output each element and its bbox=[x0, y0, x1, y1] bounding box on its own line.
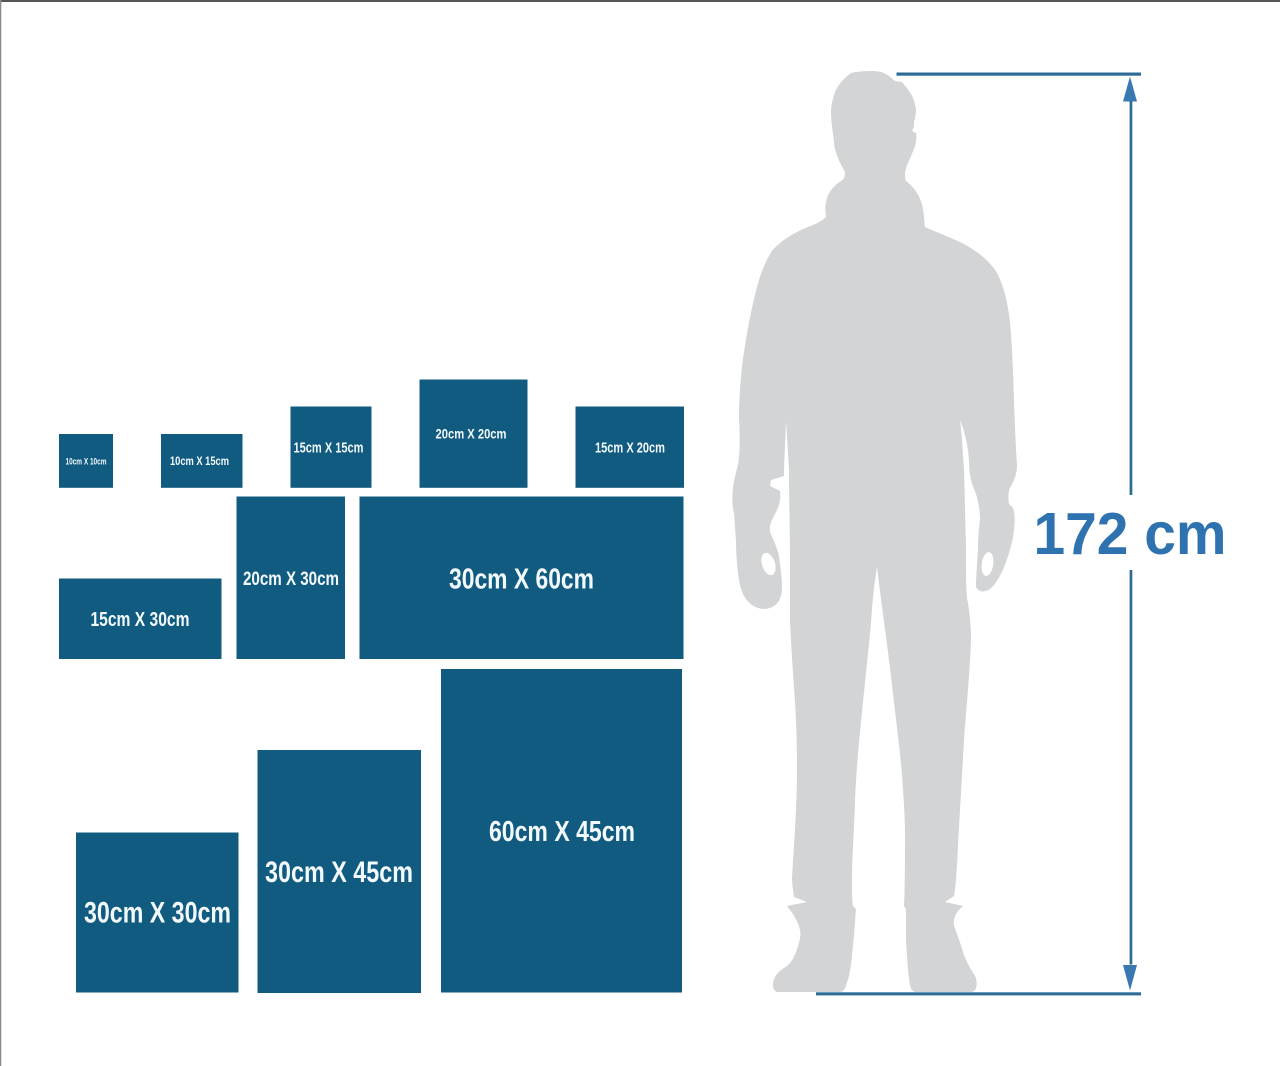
svg-text:20cm X 20cm: 20cm X 20cm bbox=[436, 426, 507, 442]
svg-text:172 cm: 172 cm bbox=[1034, 501, 1227, 567]
svg-text:10cm X 15cm: 10cm X 15cm bbox=[170, 454, 229, 468]
svg-text:15cm X 20cm: 15cm X 20cm bbox=[595, 441, 665, 457]
svg-text:30cm X 30cm: 30cm X 30cm bbox=[84, 897, 231, 930]
svg-text:20cm X 30cm: 20cm X 30cm bbox=[243, 569, 339, 590]
svg-text:15cm X 30cm: 15cm X 30cm bbox=[91, 609, 190, 631]
svg-text:30cm X 60cm: 30cm X 60cm bbox=[449, 564, 594, 596]
svg-text:60cm X 45cm: 60cm X 45cm bbox=[489, 816, 635, 848]
svg-text:15cm X 15cm: 15cm X 15cm bbox=[294, 440, 364, 457]
svg-text:30cm X 45cm: 30cm X 45cm bbox=[265, 856, 413, 889]
svg-text:10cm X 10cm: 10cm X 10cm bbox=[66, 457, 107, 467]
